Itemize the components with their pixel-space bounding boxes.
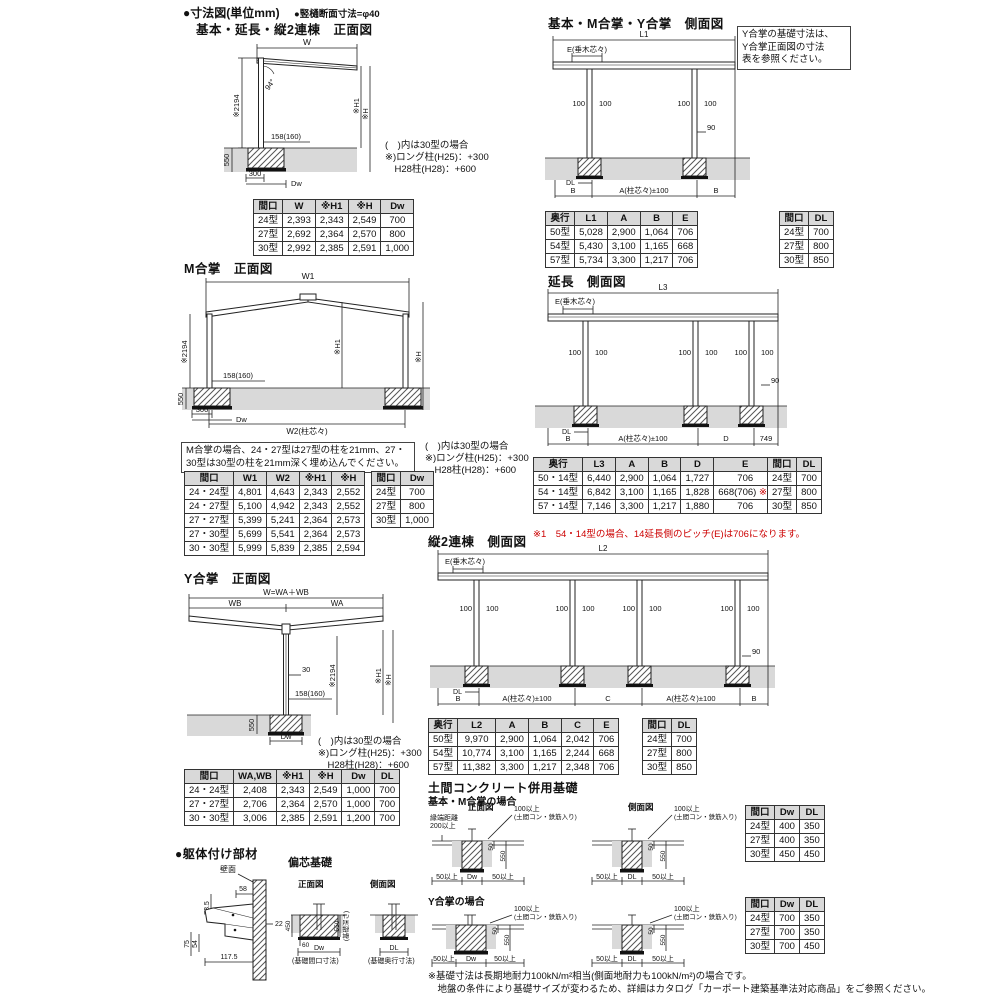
dim-50: 50 [488,843,495,851]
note-line: H28柱(H28)：+600 [385,164,489,176]
dim-min50: 50以上 [596,954,618,963]
dim-22: 22 [275,921,283,928]
dim-dl: DL [628,874,637,881]
dim-l1: L1 [640,30,649,39]
dim-min50: 50以上 [652,872,674,881]
dim-100: 100 [582,604,595,613]
dim-550: 550 [247,719,256,732]
y-gassho-title: Y合掌 正面図 [184,568,271,587]
side-basic-table: 奥行L1ABE50型5,0282,9001,06470654型5,4303,10… [545,211,698,268]
note-line: ※)ロング柱(H25)：+300 [318,748,422,760]
dim-100: 100 [678,348,691,357]
dim-50: 50 [492,927,499,935]
dim-749: 749 [760,434,773,443]
dim-100: 100 [705,348,718,357]
note-line: ( )内は30型の場合 [385,140,489,152]
dim-1175: 117.5 [221,954,238,961]
dim-dw: Dw [291,179,302,188]
m-gassho-note-box: M合掌の場合、24・27型は27型の柱を21mm、27・30型は30型の柱を21… [181,442,415,473]
dim-w: W [303,37,311,47]
y-gassho-diagram: W=WA＋WB WB WA 30 ※2194 ※H1 ※H 158(160) 5… [185,588,400,750]
dim-50: 50 [648,843,655,851]
note-line: H28柱(H28)：+600 [425,465,529,477]
dim-c: C [605,694,611,703]
dim-min50: 50以上 [436,872,458,881]
dim-dw: Dw [466,956,477,963]
m-gassho-table: 間口W1W2※H1※H24・24型4,8014,6432,3432,55224・… [184,471,365,556]
dim-min50: 50以上 [433,954,455,963]
label-conc1: 100以上 [674,804,700,813]
dim-100: 100 [649,604,662,613]
dim-100: 100 [720,604,733,613]
dim-58: 58 [239,886,247,893]
page-title-main: ●寸法図(単位mm) [183,6,280,20]
dim-d: D [723,434,729,443]
note-line: ( )内は30型の場合 [425,441,529,453]
dim-550: 550 [660,934,667,945]
dim-550: 550 [660,850,667,861]
dim-min50: 50以上 [596,872,618,881]
label-conc2: (土間コン・鉄筋入り) [674,912,737,921]
label-edge2: 200以上 [430,821,456,830]
dim-100: 100 [555,604,568,613]
dim-w: W=WA＋WB [263,588,309,597]
dim-2194: ※2194 [328,665,337,688]
side-ext-red-note: ※1 54・14型の場合、14延長側のピッチ(E)は706になります。 [533,526,805,540]
dim-beam: 158(160) [223,371,254,380]
dim-550: 550 [334,920,341,931]
dim-a: A(柱芯々)±100 [618,433,667,443]
label-side: 側面図 [627,802,654,812]
catalog-dimension-page: { "colors": {"accent_red": "#cc0000", "g… [0,0,1000,1000]
dim-100: 100 [486,604,499,613]
dim-300: 300 [249,169,262,178]
dim-100: 100 [459,604,472,613]
dim-100: 100 [572,99,585,108]
dim-e: E(垂木芯々) [445,556,485,566]
henshin-diagram: 正面図 側面図 450 550 (基礎深さ) 60 Dw (基礎間口寸法) DL… [290,870,445,970]
dim-dl: DL [628,956,637,963]
label-conc1: 100以上 [514,804,540,813]
side-basic-dl-table: 間口DL24型70027型80030型850 [779,211,834,268]
label-conc2: (土間コン・鉄筋入り) [674,812,737,821]
note-line: ※)ロング柱(H25)：+300 [425,453,529,465]
dim-100: 100 [677,99,690,108]
side-double-dl-table: 間口DL24型70027型80030型850 [642,718,697,775]
kutai-diagram: 壁面 58 73.5 22 75 54 117.5 [183,858,293,988]
dim-90: 90 [752,647,760,656]
doma-basic-diagram: 正面図 縁端距離 200以上 100以上 (土間コン・鉄筋入り) 50 550 … [428,801,740,887]
dim-h1: ※H1 [374,668,383,684]
henshin-title: 偏芯基礎 [288,854,332,870]
dim-dw: Dw [314,945,325,952]
y-gassho-note: ( )内は30型の場合 ※)ロング柱(H25)：+300 H28柱(H28)：+… [318,736,422,772]
label-conc2: (土間コン・鉄筋入り) [514,812,577,821]
doma-y-table: 間口DwDL24型70035027型70035030型700450 [745,897,825,954]
dim-dl: DL [390,945,399,952]
dim-angle: 94° [263,77,277,91]
dim-min50: 50以上 [652,954,674,963]
dim-dw: Dw [236,415,247,424]
side-ext-diagram: L3 E(垂木芯々) 100 100 100 100 100 100 90 DL… [535,283,787,453]
dim-100: 100 [761,348,774,357]
dim-b: B [570,186,575,195]
side-ext-table: 奥行L3ABDE50・14型6,4402,9001,0641,72770654・… [533,457,777,514]
dim-550: 550 [176,393,185,406]
dim-100: 100 [622,604,635,613]
dim-450: 450 [285,920,292,931]
doma-y-diagram: 100以上 (土間コン・鉄筋入り) 50 550 50以上 Dw 50以上 10… [428,903,740,967]
note-line: ※)ロング柱(H25)：+300 [385,152,489,164]
dim-90: 90 [707,123,715,132]
note-line: Y合掌の基礎寸法は、 [742,29,846,42]
label-conc2: (土間コン・鉄筋入り) [514,912,577,921]
front-basic-note: ( )内は30型の場合 ※)ロング柱(H25)：+300 H28柱(H28)：+… [385,140,489,176]
dim-60: 60 [302,942,310,949]
dim-b: B [751,694,756,703]
dim-h: ※H [361,108,370,120]
side-basic-note-box: Y合掌の基礎寸法は、 Y合掌正面図の寸法 表を参照ください。 [737,26,851,70]
dim-l3: L3 [659,283,668,292]
dim-h: ※H [384,674,393,686]
note-line: ( )内は30型の場合 [318,736,422,748]
dim-beam: 158(160) [295,689,326,698]
dim-100: 100 [734,348,747,357]
dim-h1: ※H1 [352,98,361,114]
dim-beam: 158(160) [271,132,302,141]
caption-front: (基礎間口寸法) [292,956,339,965]
dim-dw: Dw [467,874,478,881]
dim-100: 100 [747,604,760,613]
dim-b: B [565,434,570,443]
dim-550: 550 [500,850,507,861]
doma-basic-table: 間口DwDL24型40035027型40035030型450450 [745,805,825,862]
dim-75: 75 [184,940,191,948]
front-basic-table: 間口W※H1※HDw24型2,3932,3432,54970027型2,6922… [253,199,414,256]
dim-b: B [455,694,460,703]
dim-min50: 50以上 [494,954,516,963]
dim-100: 100 [595,348,608,357]
dim-30: 30 [302,665,310,674]
label-wall: 壁面 [220,864,236,874]
y-gassho-table: 間口WA,WB※H1※HDwDL24・24型2,4082,3432,5491,0… [184,769,400,826]
dim-wb: WB [229,599,242,608]
dim-100: 100 [568,348,581,357]
dim-2194: ※2194 [232,95,241,118]
henshin-side-label: 側面図 [369,879,396,889]
note-line: Y合掌正面図の寸法 [742,42,846,55]
dim-w2: W2(柱芯々) [286,426,328,436]
m-gassho-diagram: W1 ※2194 158(160) 550 ※H1 ※H 300 Dw W2(柱… [176,272,436,438]
henshin-front-label: 正面図 [298,879,324,889]
label-edge1: 縁端距離 [430,813,458,822]
dim-b: B [713,186,718,195]
m-gassho-dw-table: 間口Dw24型70027型80030型1,000 [371,471,434,528]
label-front: 正面図 [468,802,494,812]
dim-300: 300 [196,405,209,414]
note-line: 表を参照ください。 [742,54,846,67]
dim-h1: ※H1 [333,339,342,355]
dim-wa: WA [331,599,344,608]
dim-a: A(柱芯々)±100 [619,185,668,195]
side-double-table: 奥行L2ABCE50型9,9702,9001,0642,04270654型10,… [428,718,619,775]
side-double-diagram: L2 E(垂木芯々) 100 100 100 100 100 100 100 1… [430,545,775,713]
dim-min50: 50以上 [492,872,514,881]
dim-2194: ※2194 [180,341,189,364]
dim-a: A(柱芯々)±100 [502,693,551,703]
side-ext-dl-table: 間口DL24型70027型80030型850 [767,457,822,514]
footer-notes: ※基礎寸法は長期地耐力100kN/m²相当(側面地耐力も100kN/m²)の場合… [428,971,931,996]
dim-100: 100 [599,99,612,108]
dim-50: 50 [648,927,655,935]
dim-w1: W1 [302,271,315,281]
dim-550: 550 [504,934,511,945]
dim-54: 54 [192,940,199,948]
dim-550: 550 [222,154,231,167]
label-depth: (基礎深さ) [341,911,350,941]
side-basic-diagram: L1 E(垂木芯々) 100 100 100 100 90 DL B A(柱芯々… [545,28,750,208]
dim-a: A(柱芯々)±100 [666,693,715,703]
m-gassho-note: ( )内は30型の場合 ※)ロング柱(H25)：+300 H28柱(H28)：+… [425,441,529,477]
footer-line: 地盤の条件により基礎サイズが変わるため、詳細はカタログ「カーポート建築基準法対応… [428,984,931,997]
label-conc1: 100以上 [674,904,700,913]
dim-100: 100 [704,99,717,108]
dim-e: E(垂木芯々) [555,296,595,306]
dim-l2: L2 [599,544,608,553]
dim-h: ※H [414,351,423,363]
dim-dw: Dw [281,732,292,741]
dim-e: E(垂木芯々) [567,44,607,54]
front-basic-diagram: W 94° ※2194 158(160) 550 300 Dw ※H1 ※H [222,36,374,188]
caption-side: (基礎奥行寸法) [368,956,415,965]
footer-line: ※基礎寸法は長期地耐力100kN/m²相当(側面地耐力も100kN/m²)の場合… [428,971,931,984]
label-conc1: 100以上 [514,904,540,913]
